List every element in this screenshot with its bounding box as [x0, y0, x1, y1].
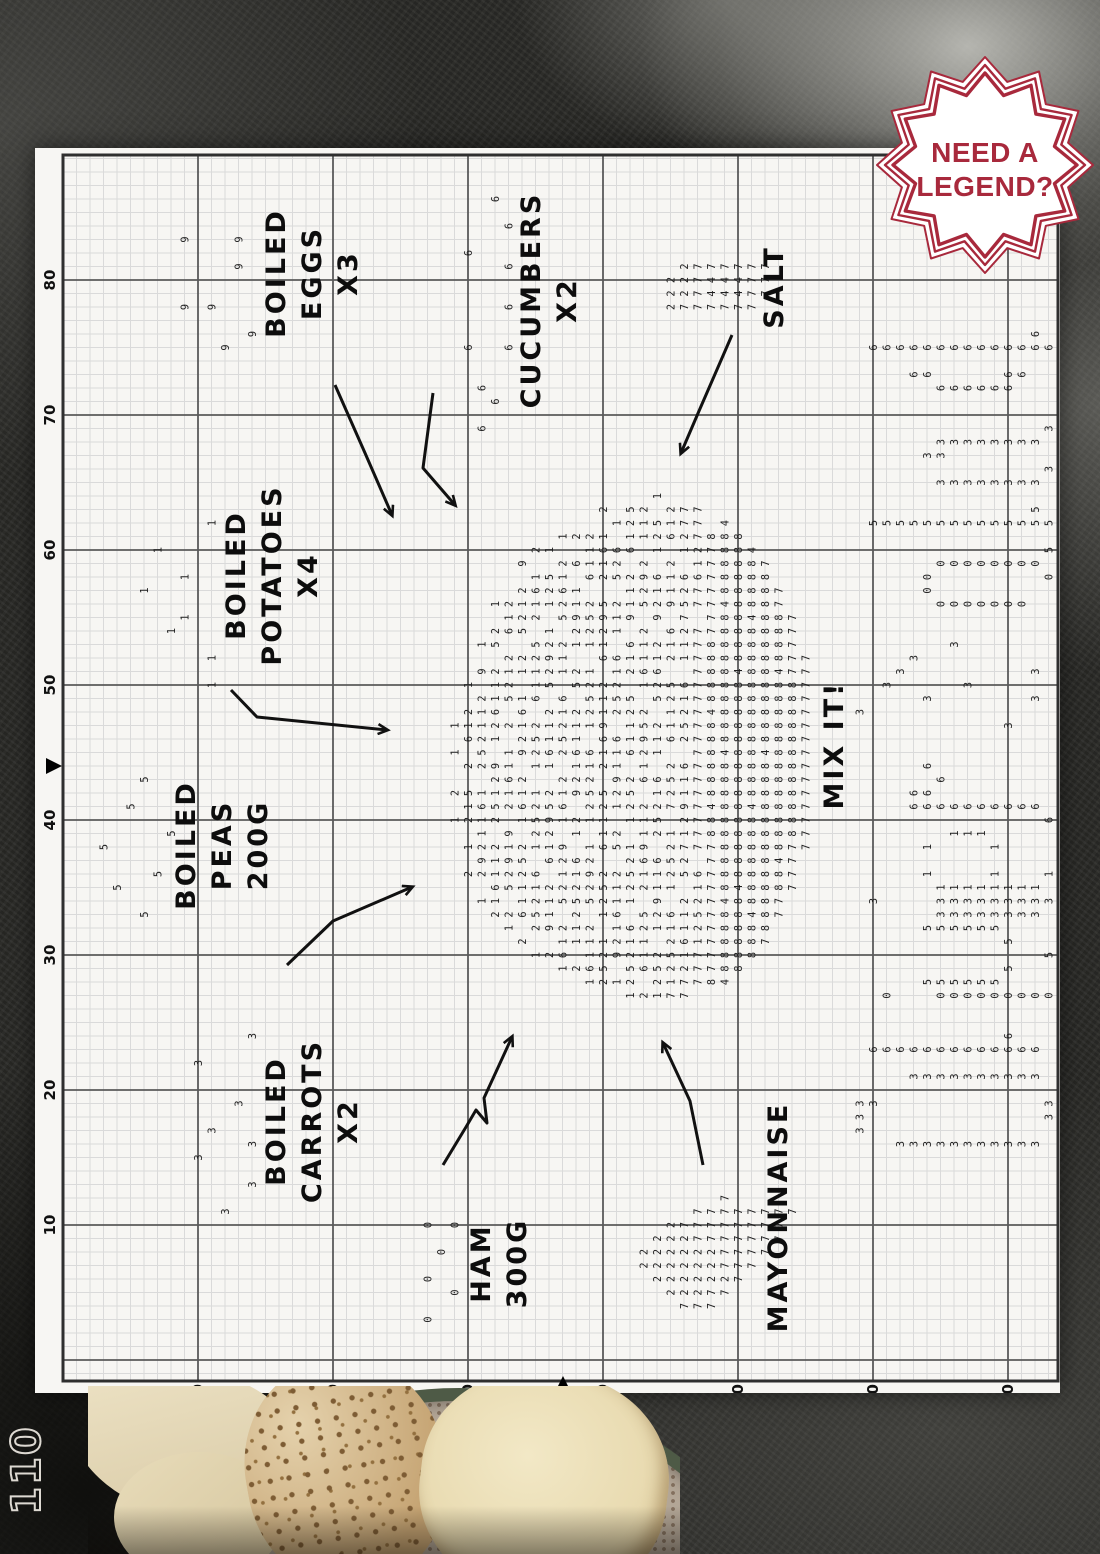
svg-text:7: 7 — [801, 709, 812, 715]
svg-text:8: 8 — [734, 655, 745, 661]
svg-text:2: 2 — [572, 709, 583, 715]
svg-text:8: 8 — [720, 668, 731, 674]
svg-text:1: 1 — [585, 668, 596, 674]
svg-text:8: 8 — [761, 844, 772, 850]
svg-text:6: 6 — [572, 560, 583, 566]
svg-text:1: 1 — [585, 817, 596, 823]
svg-text:2: 2 — [585, 628, 596, 634]
svg-text:5: 5 — [612, 844, 623, 850]
svg-text:3: 3 — [1044, 1100, 1055, 1106]
svg-text:2: 2 — [518, 655, 529, 661]
label-boiled-eggs: BOILEDEGGSX3 — [261, 208, 364, 338]
svg-text:7: 7 — [734, 1208, 745, 1214]
svg-text:8: 8 — [747, 601, 758, 607]
svg-text:4: 4 — [734, 884, 745, 890]
svg-text:3: 3 — [977, 1141, 988, 1147]
svg-text:7: 7 — [693, 803, 704, 809]
svg-text:3: 3 — [1004, 898, 1015, 904]
svg-text:3: 3 — [248, 1181, 259, 1187]
svg-text:9: 9 — [504, 857, 515, 863]
svg-text:2: 2 — [504, 601, 515, 607]
svg-text:6: 6 — [923, 763, 934, 769]
svg-text:2: 2 — [545, 641, 556, 647]
svg-text:6: 6 — [909, 344, 920, 350]
svg-text:8: 8 — [761, 695, 772, 701]
svg-text:2: 2 — [693, 925, 704, 931]
svg-text:2: 2 — [680, 857, 691, 863]
svg-text:1: 1 — [585, 938, 596, 944]
svg-text:8: 8 — [734, 682, 745, 688]
svg-text:1: 1 — [572, 871, 583, 877]
svg-text:3: 3 — [963, 898, 974, 904]
svg-text:8: 8 — [761, 736, 772, 742]
svg-text:1: 1 — [626, 722, 637, 728]
svg-text:6: 6 — [1031, 803, 1042, 809]
svg-text:1: 1 — [477, 709, 488, 715]
svg-text:3: 3 — [855, 709, 866, 715]
svg-text:7: 7 — [693, 533, 704, 539]
svg-text:7: 7 — [788, 628, 799, 634]
svg-text:6: 6 — [585, 749, 596, 755]
svg-text:6: 6 — [653, 776, 664, 782]
svg-text:2: 2 — [464, 817, 475, 823]
svg-text:2: 2 — [707, 1249, 718, 1255]
svg-text:8: 8 — [747, 763, 758, 769]
svg-text:7: 7 — [720, 1249, 731, 1255]
svg-text:7: 7 — [693, 1303, 704, 1309]
svg-text:2: 2 — [504, 871, 515, 877]
svg-text:4: 4 — [720, 277, 731, 283]
svg-text:5: 5 — [653, 520, 664, 526]
svg-text:2: 2 — [572, 884, 583, 890]
svg-text:40: 40 — [41, 810, 59, 831]
svg-text:2: 2 — [464, 709, 475, 715]
svg-text:2: 2 — [572, 817, 583, 823]
svg-text:6: 6 — [504, 223, 515, 229]
svg-text:1: 1 — [585, 763, 596, 769]
svg-text:6: 6 — [923, 790, 934, 796]
svg-text:1: 1 — [450, 749, 461, 755]
svg-text:6: 6 — [963, 803, 974, 809]
svg-text:2: 2 — [599, 871, 610, 877]
svg-text:2: 2 — [680, 965, 691, 971]
svg-text:5: 5 — [545, 574, 556, 580]
svg-text:7: 7 — [707, 628, 718, 634]
svg-text:6: 6 — [639, 776, 650, 782]
svg-text:2: 2 — [599, 574, 610, 580]
svg-text:3: 3 — [936, 898, 947, 904]
svg-text:8: 8 — [774, 776, 785, 782]
svg-text:1: 1 — [977, 830, 988, 836]
svg-text:7: 7 — [801, 722, 812, 728]
svg-text:5: 5 — [531, 911, 542, 917]
svg-text:8: 8 — [734, 965, 745, 971]
svg-text:2: 2 — [491, 844, 502, 850]
svg-text:8: 8 — [761, 830, 772, 836]
svg-text:1: 1 — [653, 884, 664, 890]
svg-text:1: 1 — [585, 641, 596, 647]
svg-text:5: 5 — [99, 844, 110, 850]
svg-text:6: 6 — [626, 925, 637, 931]
svg-text:3: 3 — [963, 911, 974, 917]
svg-text:5: 5 — [680, 871, 691, 877]
svg-text:2: 2 — [612, 682, 623, 688]
svg-text:2: 2 — [477, 763, 488, 769]
svg-text:2: 2 — [680, 898, 691, 904]
svg-text:4: 4 — [720, 898, 731, 904]
svg-text:8: 8 — [747, 817, 758, 823]
svg-text:7: 7 — [707, 304, 718, 310]
svg-text:3: 3 — [909, 1141, 920, 1147]
svg-text:0: 0 — [990, 560, 1001, 566]
svg-text:4: 4 — [707, 803, 718, 809]
svg-text:6: 6 — [923, 1046, 934, 1052]
svg-text:2: 2 — [531, 898, 542, 904]
svg-text:3: 3 — [1017, 898, 1028, 904]
svg-text:7: 7 — [747, 290, 758, 296]
svg-text:2: 2 — [599, 898, 610, 904]
svg-text:1: 1 — [612, 668, 623, 674]
svg-text:3: 3 — [936, 1073, 947, 1079]
svg-text:5: 5 — [531, 817, 542, 823]
svg-text:8: 8 — [720, 938, 731, 944]
svg-text:2: 2 — [585, 709, 596, 715]
svg-text:9: 9 — [234, 236, 245, 242]
svg-text:2: 2 — [693, 1276, 704, 1282]
svg-text:7: 7 — [707, 911, 718, 917]
svg-text:2: 2 — [626, 668, 637, 674]
svg-text:6: 6 — [626, 547, 637, 553]
svg-text:3: 3 — [950, 911, 961, 917]
svg-text:8: 8 — [720, 844, 731, 850]
svg-text:7: 7 — [707, 1303, 718, 1309]
svg-text:8: 8 — [774, 695, 785, 701]
svg-text:3: 3 — [1004, 1141, 1015, 1147]
svg-text:8: 8 — [734, 560, 745, 566]
svg-text:2: 2 — [680, 1262, 691, 1268]
svg-text:1: 1 — [612, 520, 623, 526]
svg-text:8: 8 — [788, 749, 799, 755]
svg-text:8: 8 — [720, 925, 731, 931]
svg-text:3: 3 — [990, 898, 1001, 904]
svg-text:1: 1 — [923, 844, 934, 850]
svg-text:2: 2 — [666, 1262, 677, 1268]
svg-text:2: 2 — [653, 722, 664, 728]
svg-text:9: 9 — [248, 331, 259, 337]
chart-page: 1020304050607080102030405060701211212152… — [35, 148, 1060, 1393]
svg-text:1: 1 — [693, 560, 704, 566]
svg-text:6: 6 — [869, 1046, 880, 1052]
svg-text:1: 1 — [626, 533, 637, 539]
svg-text:1: 1 — [477, 722, 488, 728]
svg-text:1: 1 — [531, 790, 542, 796]
svg-text:2: 2 — [653, 682, 664, 688]
svg-text:2: 2 — [585, 533, 596, 539]
svg-text:8: 8 — [761, 871, 772, 877]
svg-text:8: 8 — [734, 925, 745, 931]
svg-text:2: 2 — [626, 857, 637, 863]
svg-text:7: 7 — [707, 938, 718, 944]
grid — [63, 155, 1058, 1381]
svg-text:7: 7 — [693, 641, 704, 647]
svg-text:2: 2 — [653, 830, 664, 836]
svg-text:7: 7 — [693, 1222, 704, 1228]
svg-text:0: 0 — [950, 560, 961, 566]
svg-text:2: 2 — [639, 1262, 650, 1268]
svg-text:5: 5 — [1044, 520, 1055, 526]
svg-text:2: 2 — [504, 655, 515, 661]
svg-text:6: 6 — [950, 803, 961, 809]
svg-text:2: 2 — [612, 601, 623, 607]
svg-text:5: 5 — [666, 952, 677, 958]
svg-text:8: 8 — [734, 817, 745, 823]
svg-text:8: 8 — [720, 911, 731, 917]
svg-text:7: 7 — [774, 601, 785, 607]
svg-text:8: 8 — [788, 736, 799, 742]
svg-text:8: 8 — [761, 574, 772, 580]
svg-text:9: 9 — [612, 952, 623, 958]
photo-shadow — [88, 1506, 680, 1554]
svg-text:6: 6 — [936, 776, 947, 782]
svg-text:8: 8 — [707, 790, 718, 796]
svg-text:2: 2 — [680, 817, 691, 823]
svg-text:8: 8 — [788, 763, 799, 769]
svg-text:6: 6 — [518, 709, 529, 715]
svg-text:0: 0 — [923, 587, 934, 593]
svg-text:1: 1 — [167, 628, 178, 634]
svg-text:8: 8 — [734, 776, 745, 782]
svg-text:7: 7 — [788, 668, 799, 674]
svg-text:8: 8 — [720, 776, 731, 782]
svg-text:6: 6 — [680, 682, 691, 688]
svg-text:2: 2 — [599, 952, 610, 958]
svg-text:6: 6 — [639, 965, 650, 971]
svg-text:8: 8 — [734, 790, 745, 796]
svg-text:9: 9 — [612, 776, 623, 782]
svg-text:6: 6 — [990, 385, 1001, 391]
svg-text:5: 5 — [464, 790, 475, 796]
svg-text:7: 7 — [707, 965, 718, 971]
svg-text:7: 7 — [693, 790, 704, 796]
svg-text:10: 10 — [41, 1215, 59, 1236]
svg-text:8: 8 — [734, 938, 745, 944]
svg-text:8: 8 — [747, 952, 758, 958]
svg-text:5: 5 — [990, 925, 1001, 931]
svg-text:7: 7 — [693, 722, 704, 728]
svg-text:2: 2 — [491, 668, 502, 674]
svg-text:5: 5 — [153, 871, 164, 877]
svg-text:3: 3 — [1031, 1141, 1042, 1147]
svg-text:8: 8 — [761, 857, 772, 863]
svg-text:7: 7 — [788, 655, 799, 661]
svg-text:8: 8 — [761, 668, 772, 674]
svg-text:1: 1 — [990, 871, 1001, 877]
svg-text:8: 8 — [747, 574, 758, 580]
svg-text:6: 6 — [491, 884, 502, 890]
svg-text:3: 3 — [1044, 466, 1055, 472]
svg-text:0: 0 — [990, 601, 1001, 607]
svg-text:1: 1 — [531, 763, 542, 769]
svg-text:6: 6 — [990, 1046, 1001, 1052]
svg-text:8: 8 — [747, 776, 758, 782]
svg-text:2: 2 — [639, 1249, 650, 1255]
svg-text:2: 2 — [680, 277, 691, 283]
svg-text:7: 7 — [693, 682, 704, 688]
svg-text:6: 6 — [558, 952, 569, 958]
svg-text:2: 2 — [653, 911, 664, 917]
svg-text:5: 5 — [1031, 506, 1042, 512]
svg-text:3: 3 — [936, 452, 947, 458]
svg-text:1: 1 — [950, 884, 961, 890]
svg-text:1: 1 — [477, 641, 488, 647]
svg-text:9: 9 — [639, 844, 650, 850]
svg-text:0: 0 — [450, 1222, 461, 1228]
svg-text:3: 3 — [936, 439, 947, 445]
svg-text:1: 1 — [963, 830, 974, 836]
svg-text:5: 5 — [518, 857, 529, 863]
svg-text:8: 8 — [707, 668, 718, 674]
svg-text:4: 4 — [774, 668, 785, 674]
svg-text:3: 3 — [1031, 668, 1042, 674]
svg-text:6: 6 — [558, 587, 569, 593]
svg-text:9: 9 — [207, 304, 218, 310]
svg-text:7: 7 — [693, 304, 704, 310]
svg-text:2: 2 — [585, 776, 596, 782]
svg-text:7: 7 — [680, 992, 691, 998]
svg-text:5: 5 — [626, 790, 637, 796]
svg-text:7: 7 — [747, 304, 758, 310]
svg-text:3: 3 — [977, 898, 988, 904]
svg-text:6: 6 — [558, 803, 569, 809]
svg-text:3: 3 — [1017, 479, 1028, 485]
svg-text:1: 1 — [612, 803, 623, 809]
svg-text:6: 6 — [977, 1046, 988, 1052]
svg-text:7: 7 — [707, 844, 718, 850]
svg-text:7: 7 — [693, 277, 704, 283]
svg-text:1: 1 — [558, 533, 569, 539]
svg-text:2: 2 — [585, 925, 596, 931]
svg-text:8: 8 — [747, 749, 758, 755]
svg-text:4: 4 — [720, 520, 731, 526]
svg-text:2: 2 — [504, 911, 515, 917]
svg-text:5: 5 — [936, 979, 947, 985]
svg-text:1: 1 — [666, 722, 677, 728]
svg-text:8: 8 — [761, 790, 772, 796]
svg-text:1: 1 — [612, 614, 623, 620]
svg-text:1: 1 — [518, 898, 529, 904]
svg-text:3: 3 — [977, 1073, 988, 1079]
svg-text:1: 1 — [491, 898, 502, 904]
svg-text:3: 3 — [855, 1127, 866, 1133]
svg-text:6: 6 — [1004, 344, 1015, 350]
label-salt: SALT — [759, 245, 790, 329]
svg-text:1: 1 — [558, 655, 569, 661]
svg-text:8: 8 — [774, 884, 785, 890]
svg-text:5: 5 — [963, 520, 974, 526]
svg-text:9: 9 — [680, 803, 691, 809]
svg-text:8: 8 — [720, 641, 731, 647]
svg-text:7: 7 — [801, 695, 812, 701]
svg-text:9: 9 — [572, 614, 583, 620]
svg-text:8: 8 — [774, 682, 785, 688]
svg-text:1: 1 — [477, 898, 488, 904]
svg-text:2: 2 — [680, 709, 691, 715]
svg-text:6: 6 — [491, 709, 502, 715]
svg-text:2: 2 — [666, 763, 677, 769]
svg-text:9: 9 — [653, 898, 664, 904]
svg-text:8: 8 — [747, 857, 758, 863]
svg-text:7: 7 — [693, 506, 704, 512]
svg-text:2: 2 — [491, 911, 502, 917]
svg-text:2: 2 — [680, 263, 691, 269]
svg-text:2: 2 — [612, 790, 623, 796]
svg-text:6: 6 — [963, 385, 974, 391]
svg-text:2: 2 — [464, 871, 475, 877]
svg-text:2: 2 — [545, 709, 556, 715]
svg-text:1: 1 — [491, 682, 502, 688]
svg-text:1: 1 — [572, 763, 583, 769]
svg-text:2: 2 — [599, 628, 610, 634]
svg-text:6: 6 — [1004, 371, 1015, 377]
svg-text:2: 2 — [545, 668, 556, 674]
svg-text:8: 8 — [707, 641, 718, 647]
svg-text:0: 0 — [936, 560, 947, 566]
svg-text:5: 5 — [936, 520, 947, 526]
svg-text:2: 2 — [666, 1235, 677, 1241]
svg-text:3: 3 — [977, 439, 988, 445]
svg-text:6: 6 — [680, 938, 691, 944]
svg-text:5: 5 — [666, 857, 677, 863]
svg-text:0: 0 — [423, 1222, 434, 1228]
svg-text:7: 7 — [720, 1289, 731, 1295]
svg-text:2: 2 — [666, 695, 677, 701]
svg-text:1: 1 — [545, 547, 556, 553]
svg-text:2: 2 — [599, 979, 610, 985]
svg-text:1: 1 — [558, 938, 569, 944]
svg-text:1: 1 — [599, 695, 610, 701]
svg-text:7: 7 — [693, 263, 704, 269]
svg-text:1: 1 — [585, 722, 596, 728]
svg-text:2: 2 — [720, 1276, 731, 1282]
svg-text:0: 0 — [977, 560, 988, 566]
svg-text:6: 6 — [518, 911, 529, 917]
svg-text:2: 2 — [666, 965, 677, 971]
svg-text:5: 5 — [936, 925, 947, 931]
svg-text:9: 9 — [221, 344, 232, 350]
svg-text:6: 6 — [936, 344, 947, 350]
svg-text:0: 0 — [1017, 992, 1028, 998]
svg-text:0: 0 — [1031, 560, 1042, 566]
svg-text:8: 8 — [734, 803, 745, 809]
svg-text:1: 1 — [504, 749, 515, 755]
svg-text:6: 6 — [491, 196, 502, 202]
svg-text:0: 0 — [950, 601, 961, 607]
svg-text:8: 8 — [788, 790, 799, 796]
svg-text:8: 8 — [720, 695, 731, 701]
svg-text:9: 9 — [666, 601, 677, 607]
svg-text:1: 1 — [531, 844, 542, 850]
svg-text:2: 2 — [531, 803, 542, 809]
svg-text:7: 7 — [734, 304, 745, 310]
svg-text:7: 7 — [680, 1222, 691, 1228]
svg-text:7: 7 — [693, 844, 704, 850]
svg-text:6: 6 — [1031, 1046, 1042, 1052]
svg-text:2: 2 — [639, 992, 650, 998]
svg-text:2: 2 — [680, 1249, 691, 1255]
svg-text:5: 5 — [558, 898, 569, 904]
svg-text:6: 6 — [572, 857, 583, 863]
svg-text:6: 6 — [1017, 371, 1028, 377]
